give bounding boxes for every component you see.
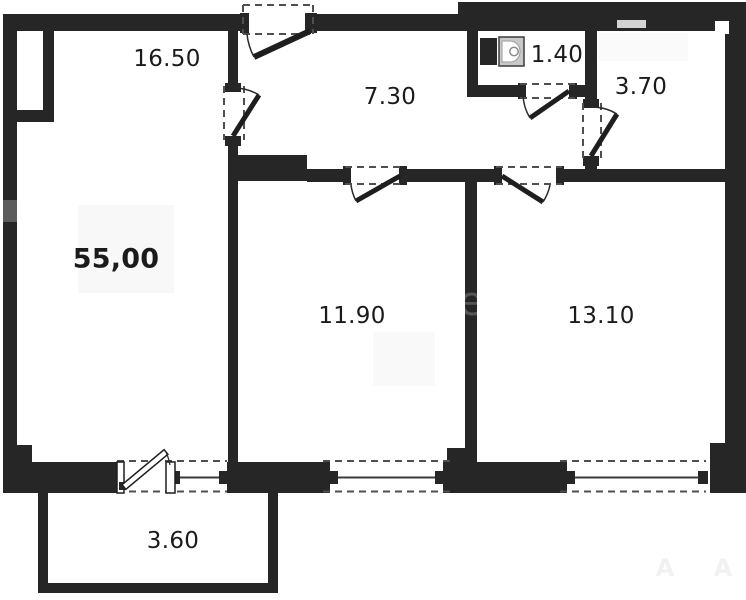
area-label-balcony: 3.60 bbox=[147, 528, 199, 554]
area-label-room-11-90: 11.90 bbox=[318, 303, 385, 329]
toilet-icon bbox=[480, 37, 524, 66]
area-label-room-16-50: 16.50 bbox=[133, 46, 200, 72]
area-label-room-13-10: 13.10 bbox=[567, 303, 634, 329]
corner-notch bbox=[715, 21, 729, 34]
room-11-90-door bbox=[351, 176, 400, 201]
wc-door bbox=[523, 91, 569, 118]
room-3-70-door bbox=[591, 107, 617, 156]
vent-tab bbox=[617, 20, 646, 28]
area-label-room-3-70: 3.70 bbox=[615, 74, 667, 100]
room-13-10-door bbox=[502, 176, 550, 202]
watermark-letter-left: А bbox=[656, 554, 675, 582]
area-label-wc: 1.40 bbox=[531, 42, 583, 68]
room-16-50-door bbox=[233, 88, 259, 136]
floor-plan: 16.50 55,00 7.30 1.40 3.70 11.90 13.10 3… bbox=[0, 0, 746, 600]
area-label-hallway: 7.30 bbox=[364, 84, 416, 110]
watermark-band bbox=[3, 200, 17, 222]
watermark-letter-right: А bbox=[714, 554, 733, 582]
total-area-label: 55,00 bbox=[73, 244, 159, 275]
shaft-niche bbox=[17, 31, 54, 122]
watermark-letter-wall: е bbox=[459, 279, 484, 325]
balcony-door bbox=[117, 450, 175, 493]
